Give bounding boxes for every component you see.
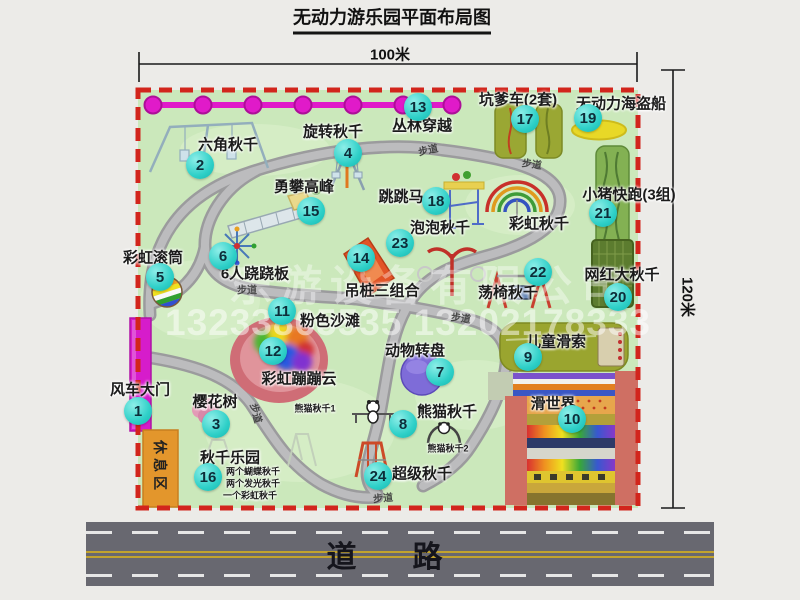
park-plan-screenshot: 无动力游乐园平面布局图 100米 120米 乐游设备有限公司 132338655…: [0, 0, 800, 600]
facility-14-marker: 14: [347, 244, 375, 272]
facility-20-marker: 20: [604, 283, 632, 311]
facility-22-marker: 22: [524, 258, 552, 286]
trail-label: 步道: [237, 282, 257, 297]
panda-swing-2-label: 熊猫秋千2: [427, 442, 468, 455]
facility-14-label: 吊桩三组合: [344, 280, 419, 301]
facility-8-marker: 8: [389, 410, 417, 438]
trail-label: 步道: [450, 308, 472, 326]
facility-16-marker: 16: [194, 463, 222, 491]
facility-2-label: 六角秋千: [198, 134, 258, 155]
facility-7-marker: 7: [426, 358, 454, 386]
facility-1-marker: 1: [124, 397, 152, 425]
facility-13-marker: 13: [404, 93, 432, 121]
swing-park-note-3: 一个彩虹秋千: [223, 489, 277, 502]
facility-2-marker: 2: [186, 151, 214, 179]
facility-11-marker: 11: [268, 297, 296, 325]
facility-18-marker: 18: [422, 187, 450, 215]
facility-4-marker: 4: [334, 139, 362, 167]
rainbow-swing-label: 彩虹秋千: [509, 213, 569, 234]
facility-15-marker: 15: [297, 197, 325, 225]
facility-21-marker: 21: [589, 199, 617, 227]
facility-5-marker: 5: [146, 263, 174, 291]
width-dimension-label: 100米: [370, 44, 410, 65]
rest-area-label: 休息区: [150, 440, 170, 494]
trail-label: 步道: [372, 489, 393, 506]
facility-23-label: 泡泡秋千: [410, 217, 470, 238]
road: 道路: [86, 522, 714, 586]
facility-12-label: 彩虹蹦蹦云: [261, 368, 336, 389]
facility-20-label: 网红大秋千: [584, 264, 659, 285]
facility-8-label: 熊猫秋千: [417, 401, 477, 422]
facility-12-marker: 12: [259, 337, 287, 365]
facility-17-marker: 17: [511, 105, 539, 133]
slide-world-zone: [488, 371, 638, 505]
facility-11-label: 粉色沙滩: [300, 310, 360, 331]
facility-19-marker: 19: [574, 104, 602, 132]
facility-23-marker: 23: [386, 229, 414, 257]
facility-24-marker: 24: [364, 462, 392, 490]
facility-15-label: 勇攀高峰: [274, 176, 334, 197]
facility-6-marker: 6: [209, 242, 237, 270]
facility-9-marker: 9: [514, 343, 542, 371]
facility-3-marker: 3: [202, 410, 230, 438]
road-label: 道路: [327, 532, 499, 576]
height-dimension-label: 120米: [678, 277, 699, 317]
trail-label: 步道: [521, 154, 543, 172]
panda-swing-1-label: 熊猫秋千1: [294, 402, 335, 415]
facility-10-marker: 10: [558, 405, 586, 433]
facility-22-label: 荡椅秋千: [478, 282, 538, 303]
page-title: 无动力游乐园平面布局图: [293, 4, 491, 35]
facility-24-label: 超级秋千: [392, 463, 452, 484]
facility-4-label: 旋转秋千: [303, 121, 363, 142]
facility-3-label: 樱花树: [192, 391, 237, 412]
facility-18-label: 跳跳马: [378, 186, 423, 207]
